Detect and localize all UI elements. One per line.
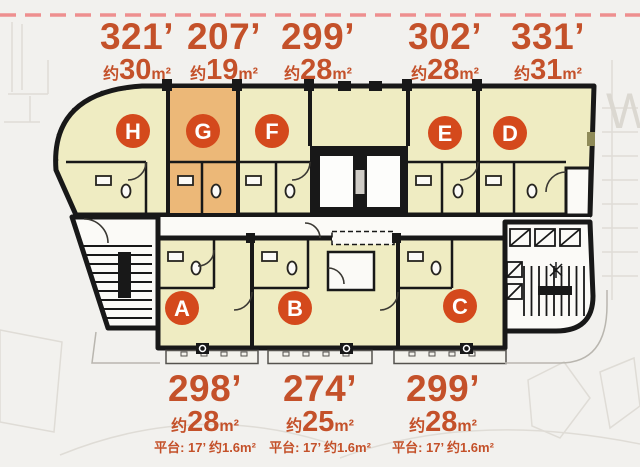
sqm-approx: 约 — [286, 418, 302, 435]
sqm-value: 28 — [425, 406, 457, 438]
lightwell-dashed — [332, 232, 394, 245]
sqm-value: 19 — [206, 54, 238, 86]
area-sqft: 274’ — [255, 370, 385, 407]
inner-room — [328, 252, 374, 290]
sqm-value: 25 — [302, 406, 334, 438]
unit-badge-letter: F — [265, 119, 278, 144]
stairwell-right — [505, 222, 593, 331]
sqm-unit: m² — [459, 66, 479, 83]
sqm-approx: 约 — [284, 66, 300, 83]
sqm-approx: 约 — [171, 418, 187, 435]
platform-label: 平台: 17’ 约1.6m² — [378, 441, 508, 454]
unit-badge-letter: B — [287, 296, 303, 321]
floor-plan-canvas: W — [0, 0, 640, 467]
elevator-core — [310, 146, 408, 216]
area-sqft: 331’ — [483, 18, 613, 55]
sqm-approx: 约 — [103, 66, 119, 83]
sqm-unit: m² — [332, 66, 352, 83]
unit-badge-letter: A — [174, 296, 190, 321]
sqm-value: 28 — [300, 54, 332, 86]
sqm-value: 30 — [119, 54, 151, 86]
sqm-unit: m² — [334, 418, 354, 435]
area-sqm-row: 约28m² — [253, 57, 383, 85]
unit-badge-letter: C — [452, 294, 468, 319]
unit-badge-letter: H — [125, 119, 141, 144]
sqm-approx: 约 — [411, 66, 427, 83]
sqm-value: 28 — [427, 54, 459, 86]
area-label-top-D: 331’ 约31m² — [483, 18, 613, 85]
area-label-bottom-B: 274’ 约25m² 平台: 17’ 约1.6m² — [255, 370, 385, 454]
sqm-unit: m² — [219, 418, 239, 435]
area-sqm-row: 约28m² — [140, 409, 270, 437]
area-sqft: 298’ — [140, 370, 270, 407]
area-sqm-row: 约31m² — [483, 57, 613, 85]
sqm-value: 31 — [530, 54, 562, 86]
lift-lobby — [566, 168, 590, 215]
unit-badge-letter: D — [502, 121, 518, 146]
platform-label: 平台: 17’ 约1.6m² — [255, 441, 385, 454]
sqm-approx: 约 — [190, 66, 206, 83]
platform-label: 平台: 17’ 约1.6m² — [140, 441, 270, 454]
area-sqm-row: 约25m² — [255, 409, 385, 437]
area-label-bottom-A: 298’ 约28m² 平台: 17’ 约1.6m² — [140, 370, 270, 454]
unit-badge-letter: G — [194, 119, 211, 144]
area-sqm-row: 约28m² — [378, 409, 508, 437]
sqm-approx: 约 — [409, 418, 425, 435]
unit-badge-letter: E — [438, 121, 453, 146]
sqm-value: 28 — [187, 406, 219, 438]
sqm-approx: 约 — [514, 66, 530, 83]
area-sqft: 299’ — [378, 370, 508, 407]
area-label-bottom-C: 299’ 约28m² 平台: 17’ 约1.6m² — [378, 370, 508, 454]
sqm-unit: m² — [562, 66, 582, 83]
area-sqft: 299’ — [253, 18, 383, 55]
window-mark — [587, 132, 595, 146]
sqm-unit: m² — [457, 418, 477, 435]
watermark-text: W — [606, 83, 640, 139]
area-label-top-F: 299’ 约28m² — [253, 18, 383, 85]
